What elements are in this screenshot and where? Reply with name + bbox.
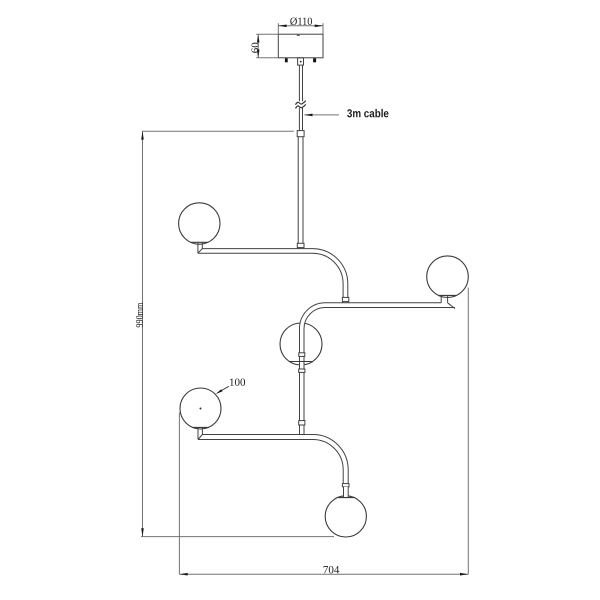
svg-text:990mm: 990mm (134, 302, 146, 327)
svg-text:60: 60 (249, 42, 261, 54)
svg-text:Ø110: Ø110 (290, 16, 313, 28)
svg-text:704: 704 (323, 564, 340, 576)
svg-text:3m cable: 3m cable (347, 108, 389, 120)
svg-text:100: 100 (229, 377, 246, 389)
